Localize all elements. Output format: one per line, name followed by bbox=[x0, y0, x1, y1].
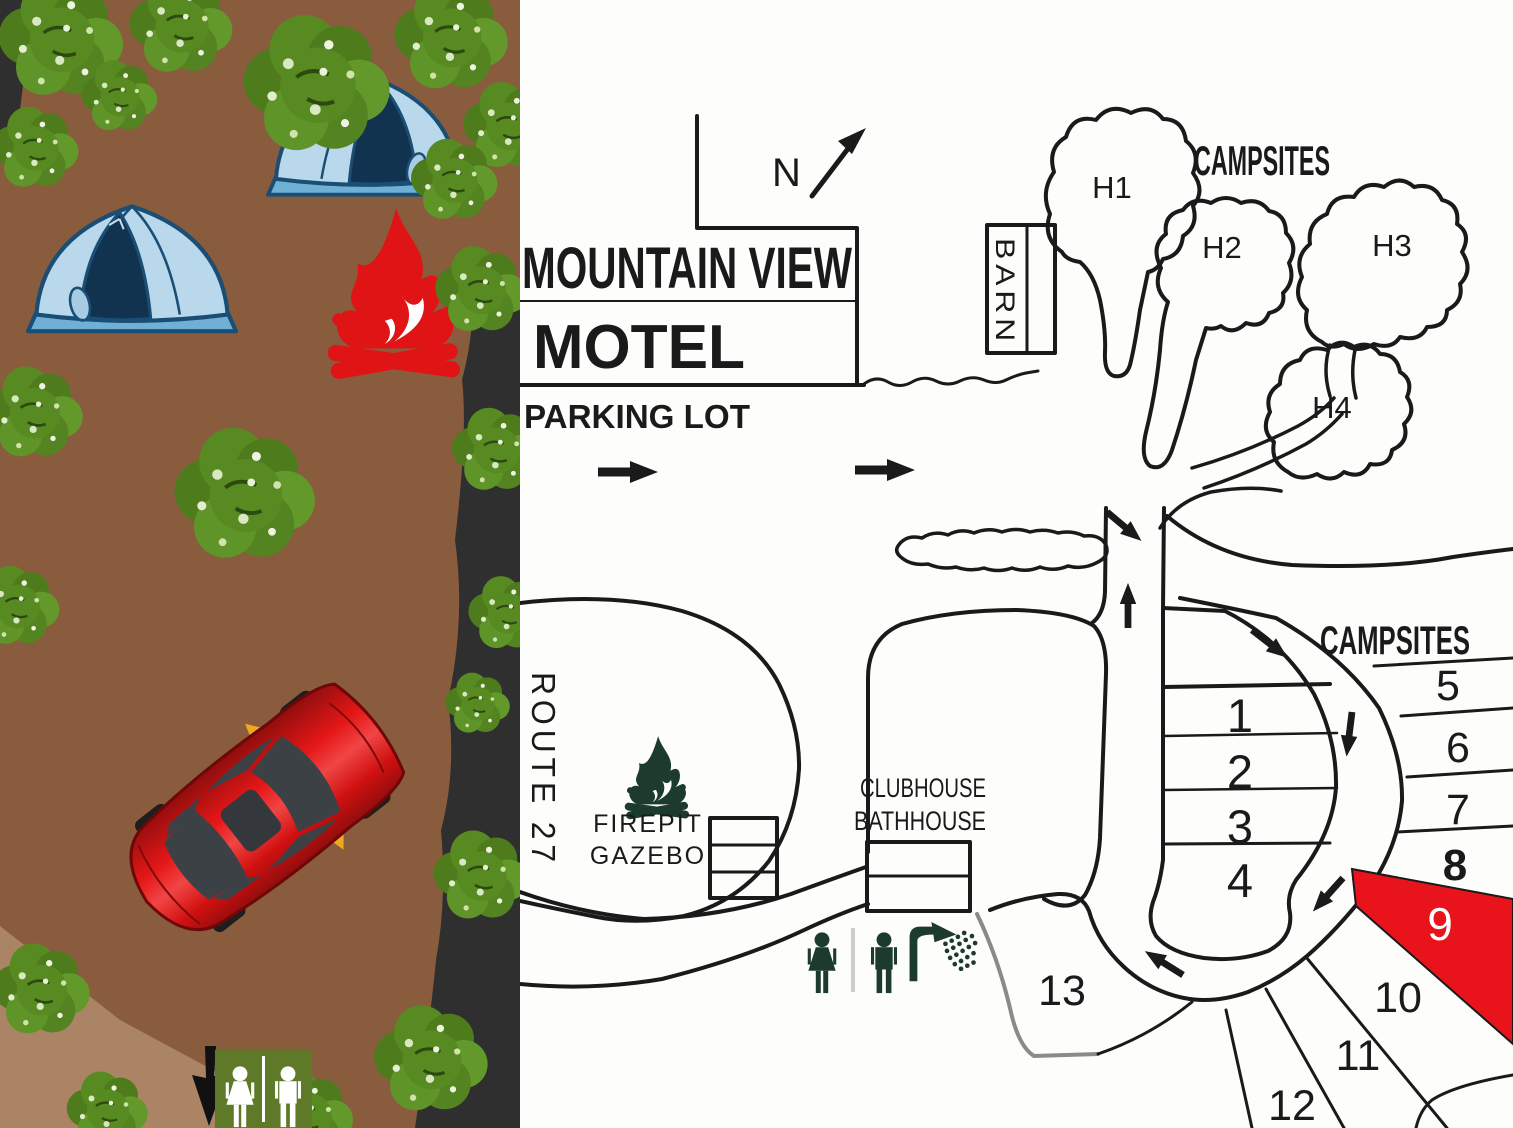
hillside-site-label: H1 bbox=[1092, 170, 1132, 205]
site-label-9: 9 bbox=[1427, 898, 1453, 950]
site-label-2: 2 bbox=[1227, 745, 1253, 798]
site-label-4: 4 bbox=[1227, 854, 1253, 907]
site-label-11: 11 bbox=[1336, 1032, 1381, 1080]
parking-lot-label: PARKING LOT bbox=[524, 398, 750, 435]
restroom-sign-icon bbox=[215, 1050, 312, 1128]
motel-title-line2: MOTEL bbox=[533, 313, 745, 382]
firepit-label-line2: GAZEBO bbox=[590, 842, 706, 870]
sign-divider bbox=[262, 1056, 265, 1122]
site-label-12: 12 bbox=[1268, 1082, 1316, 1128]
campground-map-screenshot: N MOUNTAIN VIEW MOTEL PARKING LOT BARN C… bbox=[0, 0, 1513, 1128]
barn-label: BARN bbox=[990, 238, 1020, 346]
campsite-illustration bbox=[0, 0, 520, 1128]
hillside-site-label: H3 bbox=[1372, 228, 1412, 263]
site-label-3: 3 bbox=[1227, 800, 1253, 853]
site-label-7: 7 bbox=[1446, 786, 1470, 834]
site-label-5: 5 bbox=[1436, 662, 1460, 710]
site-label-8: 8 bbox=[1443, 841, 1467, 890]
site-label-1: 1 bbox=[1227, 689, 1253, 742]
firepit-label-line1: FIREPIT bbox=[593, 810, 703, 838]
motel-title-line1: MOUNTAIN VIEW bbox=[522, 236, 852, 301]
clubhouse-label-line2: BATHHOUSE bbox=[854, 806, 986, 836]
site-label-13: 13 bbox=[1038, 967, 1086, 1015]
campsites-right-label: CAMPSITES bbox=[1320, 619, 1470, 663]
site-label-6: 6 bbox=[1446, 724, 1470, 772]
hillside-site-label: H4 bbox=[1312, 390, 1352, 425]
clubhouse-label-line1: CLUBHOUSE bbox=[860, 773, 986, 803]
icon-divider bbox=[851, 928, 855, 992]
motel-campground-map: N MOUNTAIN VIEW MOTEL PARKING LOT BARN C… bbox=[520, 0, 1513, 1128]
north-label: N bbox=[772, 151, 801, 195]
route-label: ROUTE 27 bbox=[525, 672, 562, 867]
hillside-site-label: H2 bbox=[1202, 230, 1242, 265]
site-label-10: 10 bbox=[1374, 974, 1422, 1022]
campsites-top-label: CAMPSITES bbox=[1194, 137, 1330, 184]
